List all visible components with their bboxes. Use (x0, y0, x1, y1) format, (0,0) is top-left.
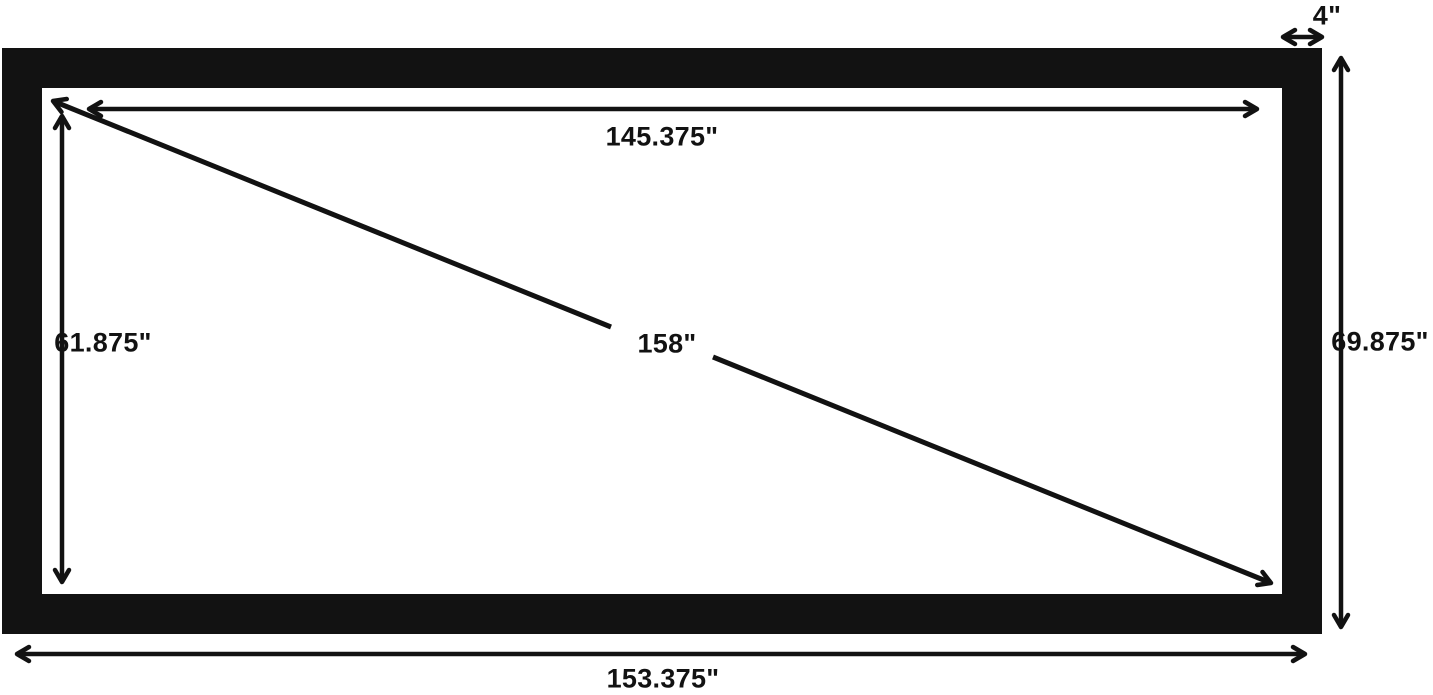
outer-width-label: 153.375" (607, 666, 720, 693)
viewing-height-label: 61.875" (54, 330, 151, 357)
viewing-width-label: 145.375" (606, 124, 719, 151)
diagram-canvas: 145.375" 61.875" 158" 69.875" 153.375" 4… (0, 0, 1433, 695)
outer-height-label: 69.875" (1331, 329, 1428, 356)
diagonal-label: 158" (637, 331, 696, 358)
frame-border-width-label: 4" (1313, 3, 1341, 30)
